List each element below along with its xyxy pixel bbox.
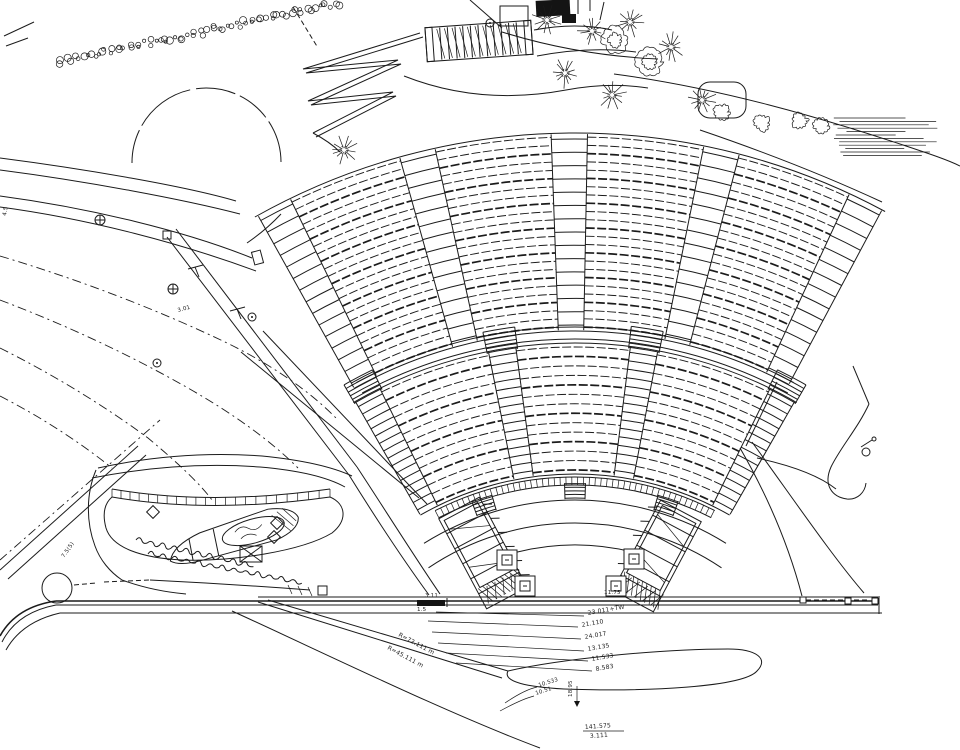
annotation-text: 21.110 [581, 618, 604, 629]
linework-path [232, 611, 540, 748]
linework-path [746, 382, 777, 446]
linework-path [438, 643, 584, 651]
handwriting-scribble [135, 537, 304, 584]
linework-path [752, 442, 864, 593]
annotation-text: 24.017 [584, 630, 607, 641]
grass-hatch [833, 118, 937, 155]
column-base [515, 576, 535, 596]
linework-path [446, 653, 588, 661]
linework-path [167, 237, 349, 475]
annotation-text: 23.011+TW [587, 604, 625, 617]
structure-rect [251, 250, 263, 265]
tree-spiky [332, 136, 357, 164]
annotation-text: 11.533 [591, 652, 614, 663]
site-linework [0, 0, 960, 748]
linework-path [428, 621, 578, 627]
drawing-sheet: 23.011+TW21.11024.01713.13511.5338.58318… [0, 0, 960, 750]
annotations: 23.011+TW21.11024.01713.13511.5338.58318… [2, 206, 625, 740]
upper-seating-tier [255, 133, 885, 388]
linework-path [0, 420, 160, 560]
structure-rect [845, 598, 851, 604]
linework-path [757, 458, 836, 489]
hedge-strip [56, 1, 343, 68]
linework-path [500, 696, 534, 711]
linework-path [0, 348, 212, 500]
linework-path [0, 396, 112, 468]
lamp-symbol [168, 284, 178, 294]
lower-seating-tier [353, 343, 796, 515]
tree-spiky [615, 10, 644, 38]
top-stairs [425, 20, 533, 61]
linework-path [288, 585, 312, 596]
structure-rect [800, 597, 806, 603]
diamond-marker [147, 506, 160, 519]
annotation-text: 7.5(5) [61, 541, 76, 559]
linework-path [8, 455, 146, 579]
structure-rect [698, 82, 746, 118]
linework-path [271, 505, 299, 534]
plan-circle [872, 437, 876, 441]
annotation-text: 4.5 [2, 206, 10, 217]
linework-path [234, 522, 264, 541]
linework-path [211, 529, 220, 556]
linework-path [574, 701, 580, 707]
annotation-text: 11.75 [604, 590, 621, 596]
structure-rect [318, 586, 327, 595]
annotation-text: 10.51 [535, 686, 553, 697]
annotation-text: 18.95 [568, 680, 574, 697]
linework-path [240, 546, 262, 562]
linework-path [268, 600, 508, 671]
tree-round [635, 47, 664, 76]
linework-path [0, 256, 338, 420]
annotation-text: 1.5 [417, 607, 427, 613]
linework-path [828, 404, 869, 499]
orchestra-arcs [424, 500, 726, 568]
annotation-text: 3.111 [590, 732, 609, 740]
linework-path [122, 580, 186, 594]
plan-circle [862, 448, 870, 456]
linework-path [112, 489, 330, 498]
lamp-symbol [95, 215, 105, 225]
column-base [624, 549, 644, 569]
plan-circle [42, 573, 72, 603]
tree-spiky [553, 60, 577, 89]
linework-path [241, 352, 419, 498]
linework-path [313, 133, 340, 152]
survey-point [248, 313, 256, 321]
linework-path [74, 583, 96, 585]
plan-structures [42, 0, 878, 606]
linework-path [176, 229, 357, 467]
linework-path [432, 632, 581, 639]
annotation-text: 141.575 [585, 722, 612, 731]
linework-path [0, 158, 236, 201]
linework-path [6, 38, 28, 46]
linework-path [0, 207, 256, 271]
structure-rect [417, 600, 445, 606]
annotation-text: 3.01 [177, 305, 191, 314]
switchback-ramp [303, 33, 423, 137]
linework-path [92, 465, 345, 487]
linework-path [861, 440, 872, 447]
cross-aisle [344, 326, 806, 404]
linework-path [4, 22, 34, 36]
amphitheater-site-plan: 23.011+TW21.11024.01713.13511.5338.58318… [0, 0, 960, 750]
linework-path [132, 88, 281, 163]
survey-point [153, 359, 161, 367]
linework-path [104, 497, 343, 560]
structure-rect [562, 14, 576, 23]
column-base [497, 550, 517, 570]
linework-path [2, 605, 56, 642]
annotation-text: 13.135 [587, 642, 610, 653]
annotation-text: 3.11 [425, 593, 438, 599]
structure-rect [872, 598, 878, 604]
tree-spiky [688, 89, 716, 112]
linework-path [0, 601, 56, 636]
linework-path [853, 366, 869, 404]
linework-path [0, 196, 252, 258]
shrub [753, 115, 770, 132]
annotation-text: 8.583 [595, 663, 614, 673]
linework-path [263, 331, 427, 504]
shrub [792, 112, 809, 129]
linework-path [600, 2, 604, 20]
linework-path [0, 300, 298, 468]
